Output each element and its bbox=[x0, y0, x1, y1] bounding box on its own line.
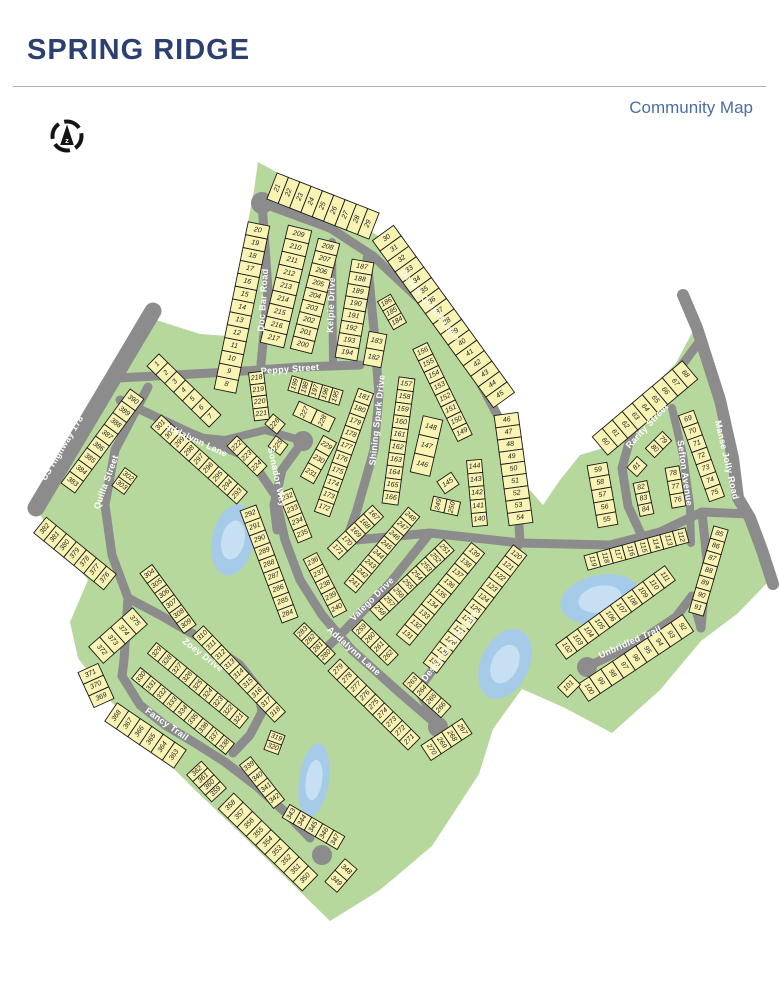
cul-de-sac bbox=[312, 845, 332, 865]
lot-number: 51 bbox=[511, 477, 520, 485]
lot-number: 78 bbox=[669, 470, 678, 478]
lot-number: 56 bbox=[600, 503, 609, 511]
lot-number: 53 bbox=[514, 502, 523, 510]
lot-number: 141 bbox=[472, 502, 484, 510]
cul-de-sac bbox=[293, 431, 313, 451]
lot-number: 143 bbox=[470, 476, 482, 484]
lot-number: 54 bbox=[516, 514, 525, 522]
lot-number: 50 bbox=[509, 465, 518, 473]
lot-number: 144 bbox=[468, 463, 480, 471]
lot-number: 49 bbox=[507, 453, 516, 461]
street-label: Kelpie Drive bbox=[325, 277, 337, 333]
lot-number: 11 bbox=[230, 342, 239, 350]
lot-number: 142 bbox=[471, 489, 483, 497]
lot-number: 59 bbox=[594, 466, 603, 474]
lot-number: 52 bbox=[512, 489, 521, 497]
lot-number: 48 bbox=[506, 441, 515, 449]
lot-number: 76 bbox=[673, 496, 682, 504]
lot-number: 58 bbox=[596, 478, 605, 486]
lot-number: 140 bbox=[473, 515, 485, 523]
lot-number: 55 bbox=[602, 516, 611, 524]
lot-number: 46 bbox=[502, 416, 511, 424]
community-map: 8910111213141516171819202122232425262728… bbox=[0, 0, 779, 1008]
